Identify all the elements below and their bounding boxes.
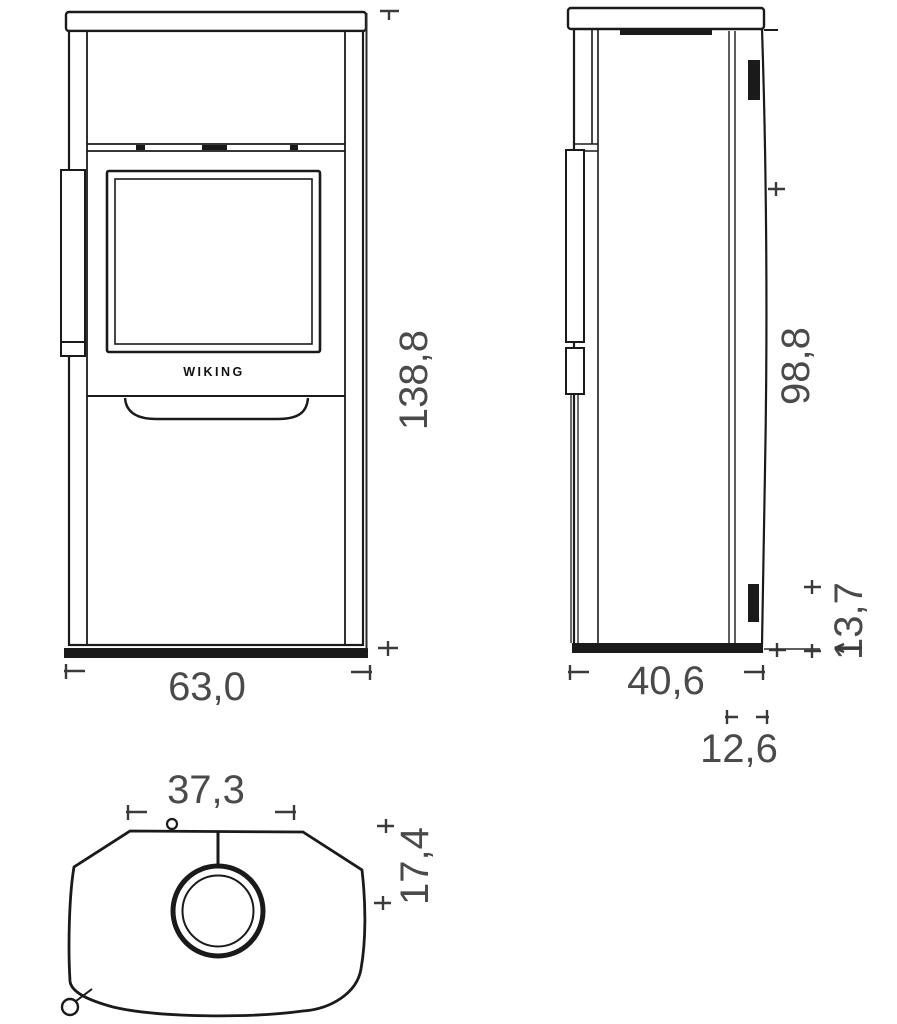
top-door-handle-knob	[62, 999, 78, 1015]
top-air-control-knob	[167, 819, 177, 829]
dim-side-outlet-height-label: 98,8	[774, 327, 818, 405]
front-hinge-mark-right	[290, 145, 298, 150]
front-door-hinge-strip	[61, 170, 85, 342]
front-base-plate	[64, 648, 368, 658]
top-flue-collar-outer	[173, 866, 263, 956]
front-hinge-mark-left	[136, 145, 145, 150]
top-view	[62, 819, 365, 1016]
dim-side-outlet-height-tick-top	[768, 182, 785, 196]
dim-front-width-tick-left	[64, 664, 85, 679]
dim-top-flue-depth-tick-bottom	[374, 896, 391, 910]
front-hinge-mark-center	[202, 145, 227, 150]
dim-front-height-tick-bottom	[378, 641, 398, 656]
dim-top-flue-depth-label: 17,4	[393, 827, 437, 905]
side-top-plate	[568, 8, 764, 29]
dimension-drawing-page: WIKING	[0, 0, 897, 1024]
dim-rear-offset-label: 12,6	[700, 727, 778, 771]
dim-top-flue-width-tick-left	[126, 805, 147, 820]
brand-logo: WIKING	[183, 365, 245, 379]
dim-top-flue-depth-tick-top	[377, 819, 394, 833]
dim-top-flue-width-tick-right	[275, 805, 296, 820]
side-rear-air-inlet	[748, 584, 759, 622]
dim-front-width-tick-right	[351, 665, 372, 680]
side-back-edge	[762, 29, 766, 645]
side-hinge-bar-lower	[566, 348, 584, 394]
dim-rear-offset-tick-right	[756, 710, 769, 724]
dim-rear-offset-tick-left	[725, 710, 738, 724]
dim-side-depth-tick-left	[568, 665, 589, 680]
front-top-plate	[66, 12, 366, 31]
dim-side-outlet-height-tick-bottom	[769, 643, 786, 657]
stove-dimension-drawing: WIKING	[0, 0, 897, 1024]
dim-side-depth-label: 40,6	[627, 659, 705, 703]
dim-lower-outlet-tick-bottom	[804, 644, 821, 658]
dim-top-flue-width-label: 37,3	[167, 768, 245, 812]
front-view: WIKING	[61, 12, 368, 658]
side-hinge-bar-upper	[566, 150, 584, 342]
dim-lower-outlet-tick-top	[804, 580, 821, 594]
front-door-glass-outer-frame	[107, 171, 320, 352]
dim-front-height-label: 138,8	[392, 330, 436, 430]
dim-front-height-tick-top	[380, 10, 399, 20]
side-top-plate-underside	[620, 29, 712, 35]
dim-side-depth-tick-right	[744, 665, 765, 680]
side-view	[566, 8, 778, 653]
dim-front-width-label: 63,0	[168, 665, 246, 709]
side-rear-flue-outlet	[748, 60, 760, 100]
side-base-plate	[572, 643, 763, 653]
front-door-hinge-strip-lower	[61, 342, 85, 356]
